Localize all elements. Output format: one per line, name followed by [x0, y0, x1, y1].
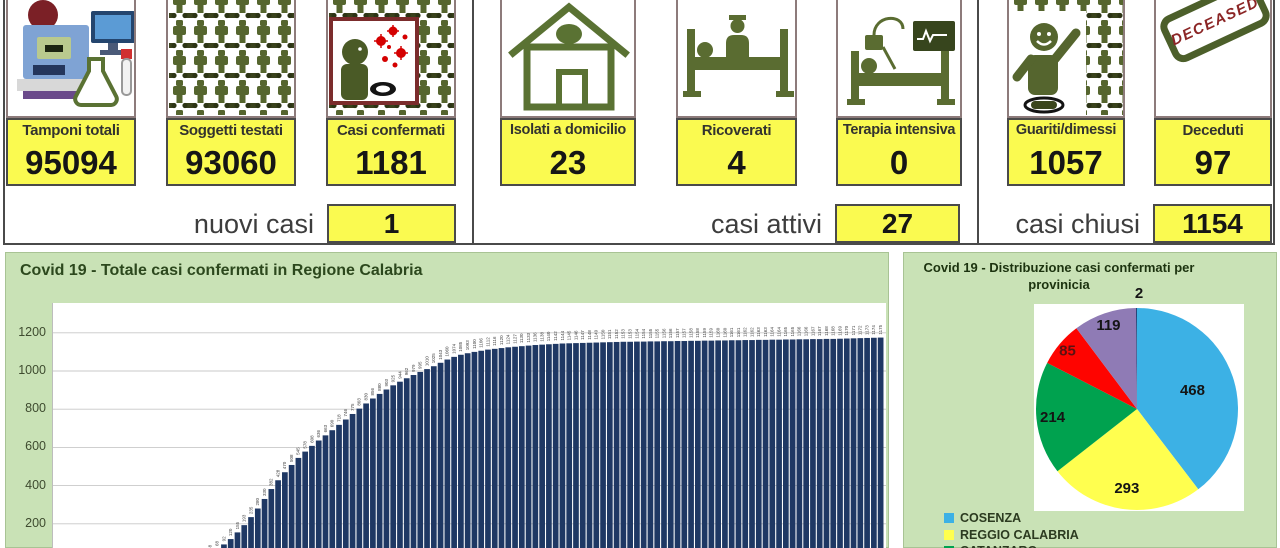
svg-text:1140: 1140	[546, 331, 551, 341]
card-value: 23	[500, 142, 636, 186]
svg-text:1154: 1154	[641, 328, 646, 338]
svg-text:1127: 1127	[512, 334, 517, 344]
y-tick-label: 400	[6, 478, 46, 492]
casi-attivi-label: casi attivi	[560, 204, 830, 246]
svg-text:1155: 1155	[655, 328, 660, 338]
card-label: Terapia intensiva	[836, 118, 962, 144]
card-label: Isolati a domicilio	[500, 118, 636, 144]
svg-text:1175: 1175	[878, 324, 883, 334]
legend-swatch	[944, 530, 954, 540]
svg-text:1166: 1166	[797, 326, 802, 336]
svg-text:508: 508	[289, 454, 294, 462]
house-icon	[500, 0, 636, 118]
pie-chart-plot-area: 468293214851192	[1034, 304, 1244, 511]
svg-text:235: 235	[248, 506, 253, 514]
svg-text:1043: 1043	[438, 349, 443, 360]
svg-text:1157: 1157	[675, 328, 680, 338]
svg-text:1158: 1158	[688, 328, 693, 338]
svg-text:1085: 1085	[458, 341, 463, 352]
card-value: 95094	[6, 142, 136, 186]
lab-analyzer-icon	[6, 0, 136, 118]
svg-text:280: 280	[255, 498, 260, 506]
svg-text:1157: 1157	[682, 328, 687, 338]
bar-chart: 1122334568101317233348689212015519323528…	[52, 303, 886, 548]
svg-text:880: 880	[377, 383, 382, 391]
card-ricoverati: Ricoverati 4	[676, 0, 797, 186]
svg-text:468: 468	[1180, 382, 1205, 399]
svg-text:1010: 1010	[424, 356, 429, 367]
svg-text:1169: 1169	[837, 326, 842, 336]
svg-text:1136: 1136	[533, 332, 538, 342]
svg-text:1164: 1164	[776, 327, 781, 337]
svg-text:1150: 1150	[600, 329, 605, 339]
svg-text:330: 330	[262, 488, 267, 496]
svg-text:1130: 1130	[519, 333, 524, 343]
svg-text:1160: 1160	[722, 327, 727, 337]
y-tick-label: 200	[6, 516, 46, 530]
card-casi-confermati: Casi confermati 1181	[326, 0, 456, 186]
svg-text:944: 944	[397, 371, 402, 379]
svg-text:1145: 1145	[567, 330, 572, 340]
nuovi-casi-label: nuovi casi	[60, 204, 322, 246]
svg-text:1120: 1120	[499, 335, 504, 345]
svg-text:1161: 1161	[729, 327, 734, 337]
legend-swatch	[944, 513, 954, 523]
svg-text:1146: 1146	[573, 330, 578, 340]
svg-text:1151: 1151	[607, 329, 612, 339]
svg-text:1158: 1158	[695, 328, 700, 338]
svg-text:1159: 1159	[702, 327, 707, 337]
svg-text:1025: 1025	[431, 353, 436, 364]
legend-item: CATANZARO	[944, 543, 1079, 548]
svg-text:1161: 1161	[736, 327, 741, 337]
svg-text:1100: 1100	[472, 339, 477, 349]
legend-label: CATANZARO	[960, 544, 1037, 548]
svg-text:1153: 1153	[621, 329, 626, 339]
hospital-bed-icon	[676, 0, 797, 118]
legend-label: REGGIO CALABRIA	[960, 528, 1079, 542]
infected-person-icon	[326, 0, 456, 118]
svg-text:746: 746	[343, 409, 348, 417]
y-tick-label: 1000	[6, 363, 46, 377]
deceased-stamp-text: DECEASED	[1156, 0, 1272, 66]
card-deceduti: DECEASED Deceduti 97	[1154, 0, 1272, 186]
svg-text:830: 830	[363, 392, 368, 400]
legend-item: COSENZA	[944, 510, 1079, 527]
svg-text:1133: 1133	[526, 332, 531, 342]
svg-text:1106: 1106	[479, 338, 484, 348]
deceased-stamp-icon: DECEASED	[1154, 0, 1272, 118]
svg-text:1162: 1162	[743, 327, 748, 337]
svg-text:962: 962	[404, 367, 409, 375]
svg-text:1165: 1165	[790, 326, 795, 336]
pie-chart-panel: Covid 19 - Distribuzione casi confermati…	[903, 252, 1277, 548]
svg-text:690: 690	[330, 419, 335, 427]
svg-text:214: 214	[1040, 409, 1066, 426]
card-soggetti-testati: Soggetti testati 93060	[166, 0, 296, 186]
card-value: 4	[676, 142, 797, 186]
svg-text:470: 470	[282, 461, 287, 469]
svg-text:48: 48	[208, 544, 213, 548]
group-divider	[472, 0, 474, 245]
card-label: Deceduti	[1154, 118, 1272, 144]
svg-text:1112: 1112	[485, 337, 490, 347]
svg-text:1116: 1116	[492, 336, 497, 346]
svg-text:1153: 1153	[627, 329, 632, 339]
svg-text:1156: 1156	[668, 328, 673, 338]
svg-text:92: 92	[221, 536, 226, 542]
svg-text:1147: 1147	[580, 330, 585, 340]
svg-text:1167: 1167	[810, 326, 815, 336]
card-value: 97	[1154, 142, 1272, 186]
svg-text:119: 119	[1096, 317, 1120, 334]
svg-text:428: 428	[275, 469, 280, 477]
y-tick-label: 1200	[6, 325, 46, 339]
svg-text:85: 85	[1059, 342, 1076, 359]
card-value: 1057	[1007, 142, 1125, 186]
svg-text:663: 663	[323, 424, 328, 432]
card-value: 93060	[166, 142, 296, 186]
card-guariti-dimessi: Guariti/dimessi 1057	[1007, 0, 1125, 186]
card-label: Casi confermati	[326, 118, 456, 144]
svg-text:1138: 1138	[539, 331, 544, 341]
bar-chart-plot-area: 1122334568101317233348689212015519323528…	[52, 303, 886, 548]
casi-chiusi-value: 1154	[1153, 204, 1272, 243]
svg-text:1060: 1060	[445, 346, 450, 357]
svg-text:2: 2	[1135, 285, 1143, 302]
svg-text:856: 856	[370, 387, 375, 395]
svg-text:903: 903	[384, 379, 389, 387]
legend-label: COSENZA	[960, 511, 1021, 525]
svg-text:1152: 1152	[614, 329, 619, 339]
card-label: Soggetti testati	[166, 118, 296, 144]
svg-text:1156: 1156	[661, 328, 666, 338]
svg-text:1171: 1171	[851, 325, 856, 335]
card-value: 1181	[326, 142, 456, 186]
dashboard: Tamponi totali 95094 Soggetti testati 93…	[0, 0, 1280, 548]
card-label: Tamponi totali	[6, 118, 136, 144]
svg-text:1164: 1164	[770, 327, 775, 337]
svg-text:803: 803	[357, 398, 362, 406]
y-tick-label: 600	[6, 439, 46, 453]
svg-text:1163: 1163	[763, 327, 768, 337]
nuovi-casi-value: 1	[327, 204, 456, 243]
svg-text:1166: 1166	[804, 326, 809, 336]
pie-chart-title-line1: Covid 19 - Distribuzione casi confermati…	[904, 260, 1214, 275]
svg-text:1154: 1154	[634, 328, 639, 338]
svg-text:1172: 1172	[858, 325, 863, 335]
svg-text:1144: 1144	[560, 330, 565, 340]
svg-text:193: 193	[242, 514, 247, 522]
svg-text:293: 293	[1114, 480, 1139, 497]
svg-text:1173: 1173	[864, 325, 869, 335]
svg-text:1149: 1149	[594, 329, 599, 339]
svg-text:1168: 1168	[831, 326, 836, 336]
svg-text:1162: 1162	[749, 327, 754, 337]
svg-text:1142: 1142	[553, 331, 558, 341]
svg-text:1160: 1160	[716, 327, 721, 337]
y-tick-label: 800	[6, 401, 46, 415]
pie-chart-title-line2: provinicia	[904, 277, 1214, 292]
svg-text:68: 68	[215, 541, 220, 547]
svg-text:1170: 1170	[844, 325, 849, 335]
svg-text:925: 925	[391, 374, 396, 382]
card-terapia-intensiva: Terapia intensiva 0	[836, 0, 962, 186]
svg-text:636: 636	[316, 430, 321, 438]
bar-chart-panel: Covid 19 - Totale casi confermati in Reg…	[5, 252, 889, 548]
card-label: Guariti/dimessi	[1007, 118, 1125, 144]
svg-text:979: 979	[411, 364, 416, 372]
card-label: Ricoverati	[676, 118, 797, 144]
recovered-person-icon	[1007, 0, 1125, 118]
svg-text:155: 155	[235, 521, 240, 529]
svg-text:545: 545	[296, 447, 301, 455]
pie-chart: 468293214851192	[1034, 304, 1244, 511]
svg-text:1148: 1148	[587, 330, 592, 340]
card-tamponi-totali: Tamponi totali 95094	[6, 0, 136, 186]
icu-bed-icon	[836, 0, 962, 118]
svg-text:1174: 1174	[871, 325, 876, 335]
svg-text:1155: 1155	[648, 328, 653, 338]
svg-text:1165: 1165	[783, 326, 788, 336]
svg-text:120: 120	[228, 528, 233, 536]
legend-item: REGGIO CALABRIA	[944, 527, 1079, 544]
svg-text:775: 775	[350, 403, 355, 411]
card-value: 0	[836, 142, 962, 186]
svg-text:1163: 1163	[756, 327, 761, 337]
svg-text:1159: 1159	[709, 327, 714, 337]
svg-text:1168: 1168	[824, 326, 829, 336]
svg-text:1124: 1124	[506, 334, 511, 344]
bar-chart-title: Covid 19 - Totale casi confermati in Reg…	[20, 262, 422, 280]
svg-text:382: 382	[269, 478, 274, 486]
svg-text:1093: 1093	[465, 340, 470, 351]
pie-chart-legend: COSENZAREGGIO CALABRIACATANZARO	[944, 510, 1079, 548]
people-crowd-icon	[166, 0, 296, 118]
svg-text:1167: 1167	[817, 326, 822, 336]
svg-text:578: 578	[303, 441, 308, 449]
svg-text:995: 995	[418, 361, 423, 369]
card-isolati-a-domicilio: Isolati a domicilio 23	[500, 0, 636, 186]
casi-chiusi-label: casi chiusi	[900, 204, 1148, 246]
svg-text:1074: 1074	[451, 343, 456, 354]
svg-text:608: 608	[309, 435, 314, 443]
svg-text:718: 718	[336, 414, 341, 422]
